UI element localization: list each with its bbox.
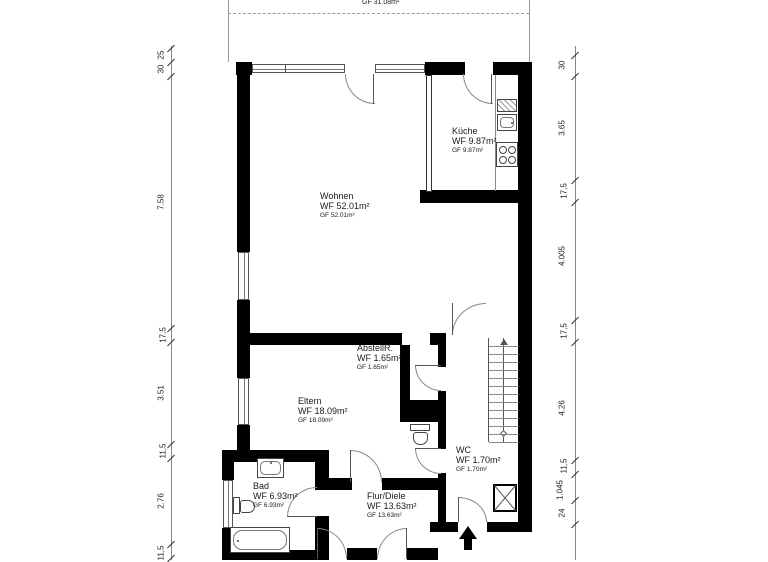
dimension-label: 4.26	[558, 400, 567, 416]
terrace-area-label: GF 31.08m²	[362, 0, 399, 6]
shaft-x-icon	[493, 484, 517, 512]
room-gf: GF 18.09m²	[298, 417, 348, 424]
wall-segment	[315, 450, 329, 490]
wall-segment	[237, 62, 250, 252]
room-name: Eltern	[298, 396, 348, 406]
wall-segment	[407, 548, 438, 560]
door-leaf	[406, 528, 407, 559]
roof-overhang-dashed-line	[228, 13, 529, 14]
room-wf: WF 6.93m²	[253, 491, 298, 501]
wall-segment	[382, 478, 446, 490]
room-label-wc: WC WF 1.70m² GF 1.70m²	[456, 445, 501, 473]
terrace-edge-left	[228, 0, 229, 62]
dimension-label: 17,5	[560, 323, 569, 339]
sink-icon	[257, 458, 284, 478]
room-label-kueche: Küche WF 9.87m² GF 9.87m²	[452, 126, 497, 154]
door-leaf	[350, 450, 351, 482]
room-gf: GF 13.63m²	[367, 512, 417, 519]
room-gf: GF 1.65m²	[357, 364, 402, 371]
stair-tread	[489, 442, 519, 443]
wall-segment	[430, 333, 446, 345]
room-wf: WF 1.70m²	[456, 455, 501, 465]
toilet-icon	[413, 432, 428, 445]
dimension-label: 11,5	[560, 459, 569, 474]
door-arc-hall-right	[377, 528, 407, 559]
door-leaf	[415, 448, 441, 449]
dimension-label: 4.005	[558, 246, 567, 266]
door-arc-living	[452, 303, 486, 335]
dimension-line-left	[171, 46, 172, 560]
entrance-arrow-icon	[464, 538, 472, 550]
stair-tread	[489, 402, 519, 403]
stair-tread	[489, 434, 519, 435]
partition-wall	[426, 75, 432, 192]
stair-tread	[489, 418, 519, 419]
wall-segment	[420, 190, 532, 203]
bathtub-icon	[230, 527, 290, 553]
room-name: Bad	[253, 481, 298, 491]
room-gf: GF 1.70m²	[456, 466, 501, 473]
room-wf: WF 9.87m²	[452, 136, 497, 146]
room-gf: GF 9.87m²	[452, 147, 497, 154]
door-arc-terrace	[345, 74, 375, 104]
room-label-flur: Flur/Diele WF 13.63m² GF 13.63m²	[367, 491, 417, 519]
stove-icon	[496, 142, 518, 167]
room-wf: WF 18.09m²	[298, 406, 348, 416]
door-leaf	[458, 497, 459, 522]
door-leaf	[491, 74, 492, 104]
window	[375, 64, 425, 73]
floor-plan-canvas: GF 31.08m²	[0, 0, 768, 560]
wall-segment	[518, 75, 532, 532]
dimension-label: 30	[558, 61, 567, 70]
door-arc-kitchen	[463, 74, 493, 104]
dimension-label: 24	[558, 509, 567, 518]
room-name: Küche	[452, 126, 497, 136]
room-gf: GF 52.01m²	[320, 212, 370, 219]
wall-segment	[347, 548, 377, 560]
dimension-line-right	[575, 46, 576, 560]
door-arc-eltern	[350, 450, 382, 482]
dimension-label: 30	[157, 65, 166, 74]
window	[223, 480, 233, 528]
door-arc-hall-left	[317, 528, 347, 559]
stair-up-arrow-icon	[500, 339, 508, 345]
room-label-wohnen: Wohnen WF 52.01m² GF 52.01m²	[320, 191, 370, 219]
dimension-label: 3.51	[157, 385, 166, 401]
wall-segment	[438, 345, 446, 367]
wall-segment	[487, 522, 532, 532]
door-leaf	[373, 74, 374, 104]
dimension-label: 2.76	[157, 493, 166, 509]
stair-tread	[489, 426, 519, 427]
toilet-icon	[233, 497, 240, 514]
room-name: WC	[456, 445, 501, 455]
stair-tread	[489, 394, 519, 395]
window	[252, 64, 345, 73]
wall-segment	[430, 522, 458, 532]
door-arc-entrance	[458, 497, 487, 522]
dimension-label: 17,5	[560, 183, 569, 199]
stair-tread	[489, 354, 519, 355]
stairs	[488, 338, 518, 442]
door-arc-wc	[415, 448, 441, 474]
door-leaf	[452, 303, 453, 335]
room-wf: WF 52.01m²	[320, 201, 370, 211]
dimension-label: 11,5	[159, 444, 168, 459]
dimension-label: 1.045	[556, 480, 565, 500]
room-label-abstellr: AbstellR. WF 1.65m² GF 1.65m²	[357, 343, 402, 371]
stair-tread	[489, 378, 519, 379]
window-mullion	[285, 64, 286, 73]
window	[238, 378, 249, 425]
room-label-eltern: Eltern WF 18.09m² GF 18.09m²	[298, 396, 348, 424]
room-name: AbstellR.	[357, 343, 402, 353]
stair-tread	[489, 410, 519, 411]
terrace-edge-right	[529, 0, 530, 62]
stair-tread	[489, 370, 519, 371]
dimension-label: 3.65	[558, 120, 567, 136]
dimension-label: 7.58	[157, 194, 166, 210]
room-label-bad: Bad WF 6.93m² GF 6.93m²	[253, 481, 298, 509]
door-arc-storage	[415, 365, 441, 391]
kitchen-sink-icon	[497, 114, 517, 131]
stair-tread	[489, 362, 519, 363]
door-leaf	[317, 528, 318, 559]
room-gf: GF 6.93m²	[253, 502, 298, 509]
room-name: Flur/Diele	[367, 491, 417, 501]
door-leaf	[415, 365, 441, 366]
dimension-label: 25	[157, 51, 166, 60]
toilet-icon	[410, 424, 430, 431]
window	[238, 252, 249, 300]
door-leaf	[287, 516, 317, 517]
room-name: Wohnen	[320, 191, 370, 201]
wall-segment	[425, 62, 465, 75]
dimension-label: 17,5	[159, 327, 168, 343]
wall-segment	[493, 62, 532, 75]
room-wf: WF 13.63m²	[367, 501, 417, 511]
counter-hatch	[497, 99, 517, 112]
stair-tread	[489, 386, 519, 387]
wall-segment	[438, 391, 446, 449]
dimension-label: 11,5	[157, 546, 166, 561]
stair-tread	[489, 346, 519, 347]
room-wf: WF 1.65m²	[357, 353, 402, 363]
